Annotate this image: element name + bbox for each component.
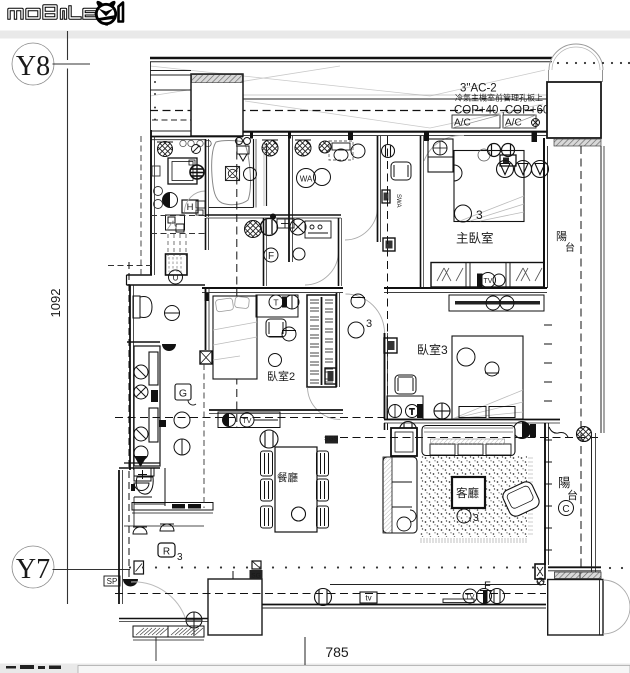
svg-text:臥室3: 臥室3 (417, 342, 448, 357)
svg-text:Y7: Y7 (16, 554, 50, 585)
svg-text:H: H (187, 202, 194, 213)
svg-text:U: U (173, 274, 179, 283)
svg-text:陽: 陽 (556, 230, 567, 243)
svg-text:3: 3 (177, 552, 183, 563)
svg-text:客廳: 客廳 (456, 486, 479, 500)
svg-text:臥室2: 臥室2 (267, 369, 295, 383)
svg-text:TV: TV (243, 418, 252, 425)
svg-text:台: 台 (565, 241, 575, 254)
svg-text:3: 3 (366, 318, 372, 330)
svg-text:餐廳: 餐廳 (277, 471, 298, 484)
svg-text:T: T (409, 407, 414, 417)
svg-text:主臥室: 主臥室 (456, 231, 494, 246)
svg-text:TV: TV (466, 594, 475, 601)
svg-text:A/C: A/C (454, 118, 471, 129)
svg-text:tv: tv (365, 594, 371, 603)
svg-text:G: G (179, 388, 187, 400)
svg-text:A/C: A/C (505, 118, 522, 129)
svg-text:SWA: SWA (395, 194, 401, 207)
svg-text:陽: 陽 (558, 476, 571, 490)
svg-text:台: 台 (567, 488, 578, 502)
svg-text:T: T (273, 298, 278, 308)
svg-text:SG: SG (251, 573, 260, 580)
svg-text:冷氣主機室前管理孔板上: 冷氣主機室前管理孔板上 (455, 93, 543, 103)
svg-text:Y8: Y8 (16, 51, 50, 82)
svg-text:1092: 1092 (48, 289, 63, 318)
svg-text:F: F (268, 251, 274, 262)
svg-text:SGS: SGS (324, 436, 338, 443)
svg-text:785: 785 (325, 644, 349, 660)
svg-text:SP: SP (107, 577, 118, 586)
svg-text:WA: WA (300, 175, 313, 184)
svg-text:R: R (163, 547, 170, 558)
svg-text:TV: TV (484, 278, 493, 285)
svg-text:3: 3 (473, 512, 479, 524)
svg-text:C: C (562, 504, 569, 515)
svg-text:3: 3 (476, 208, 483, 222)
